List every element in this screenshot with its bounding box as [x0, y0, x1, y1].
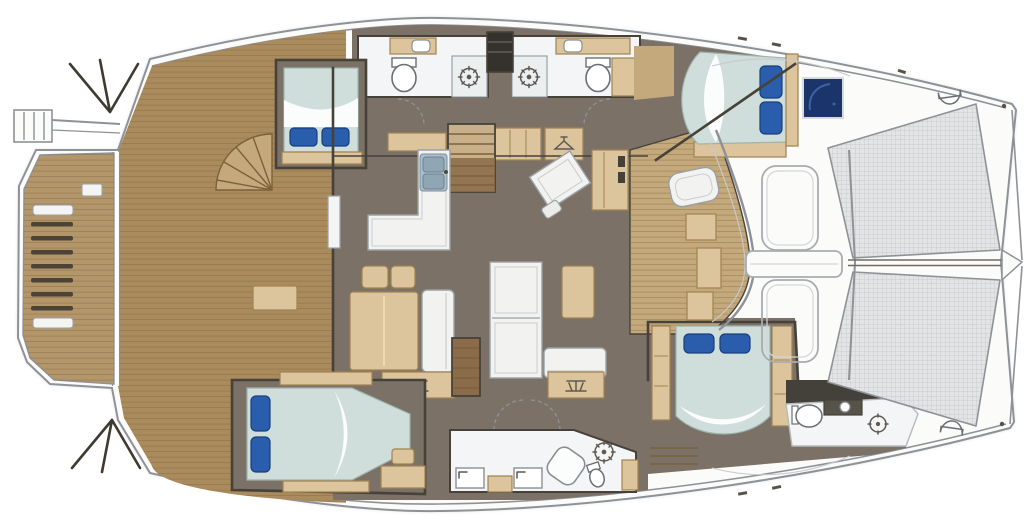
- cleat-icon: [772, 485, 781, 490]
- cockpit-bench: [697, 248, 721, 288]
- boarding-ladder-icon: [14, 110, 120, 142]
- bow-fitting-dot: [1000, 422, 1004, 426]
- stairs-starboard: [452, 338, 480, 396]
- cleat-icon: [898, 69, 907, 74]
- pillow: [251, 437, 270, 472]
- pillow: [720, 334, 750, 353]
- cleat-icon: [772, 42, 781, 47]
- cabin-aft-port: [276, 60, 366, 168]
- catamaran-deck-plan: [0, 0, 1024, 532]
- toilet-aft-port: [392, 58, 416, 92]
- stair-landing: [388, 133, 446, 151]
- shower-icon-aft-port: [459, 67, 480, 88]
- platform-step-pad-top: [33, 205, 73, 215]
- basin-fwd-port: [564, 40, 582, 52]
- sink-owner: [456, 468, 484, 488]
- cabinet-slot: [618, 156, 625, 167]
- cabin-desk: [381, 466, 425, 488]
- pillow: [251, 396, 270, 431]
- basin-fwd-head: [840, 402, 850, 412]
- cleat-icon: [738, 36, 747, 41]
- cockpit-table: [686, 214, 716, 240]
- toilet-fwd-port: [586, 58, 610, 92]
- fridge-unit: [490, 262, 542, 378]
- bow-fitting-dot: [1002, 104, 1006, 108]
- sink-bowl: [423, 174, 444, 189]
- pillow: [290, 128, 317, 146]
- dinette-chair: [362, 266, 388, 288]
- platform-cleat-pad: [82, 184, 102, 196]
- cabinet-slot: [618, 172, 625, 183]
- cabin-fwd-port-teak: [634, 46, 674, 100]
- coffee-table: [562, 266, 594, 318]
- shower-icon-fwd-port: [519, 67, 540, 88]
- floor-plan-page: [0, 0, 1024, 532]
- deck-hatch-navy: [803, 78, 843, 118]
- cabin-seat: [392, 449, 414, 464]
- bed-platform-aft-stbd-bottom: [283, 481, 369, 492]
- salon-sofa-side: [422, 290, 454, 372]
- deck-locker: [253, 286, 297, 310]
- cabin-shelf-left: [652, 326, 670, 420]
- bed-platform-aft-port: [282, 152, 362, 164]
- dresser-port: [495, 128, 541, 160]
- salon-aft-door: [328, 196, 340, 248]
- dinette-chair: [391, 266, 415, 288]
- stairs-port: [448, 124, 495, 192]
- bath-locker: [622, 460, 638, 490]
- cleat-icon: [738, 491, 747, 496]
- sink-cabinet: [488, 476, 512, 492]
- stern-corner-seams-top: [70, 60, 138, 112]
- toilet-fwd-head: [792, 405, 822, 427]
- bed-platform-aft-stbd-top: [280, 372, 372, 385]
- bowsprit-tip: [1002, 250, 1022, 280]
- sink-bowl: [423, 157, 444, 172]
- shower-icon-owner: [593, 441, 615, 463]
- pillow: [684, 334, 714, 353]
- pillow: [322, 128, 349, 146]
- cockpit-seat-box: [687, 292, 713, 320]
- platform-step-pad-bottom: [33, 318, 73, 328]
- pillow: [760, 102, 782, 134]
- faucet-dot: [444, 170, 448, 174]
- sink-owner: [514, 468, 542, 488]
- cabin-aft-stbd: [232, 372, 425, 494]
- basin-aft-port: [412, 40, 430, 52]
